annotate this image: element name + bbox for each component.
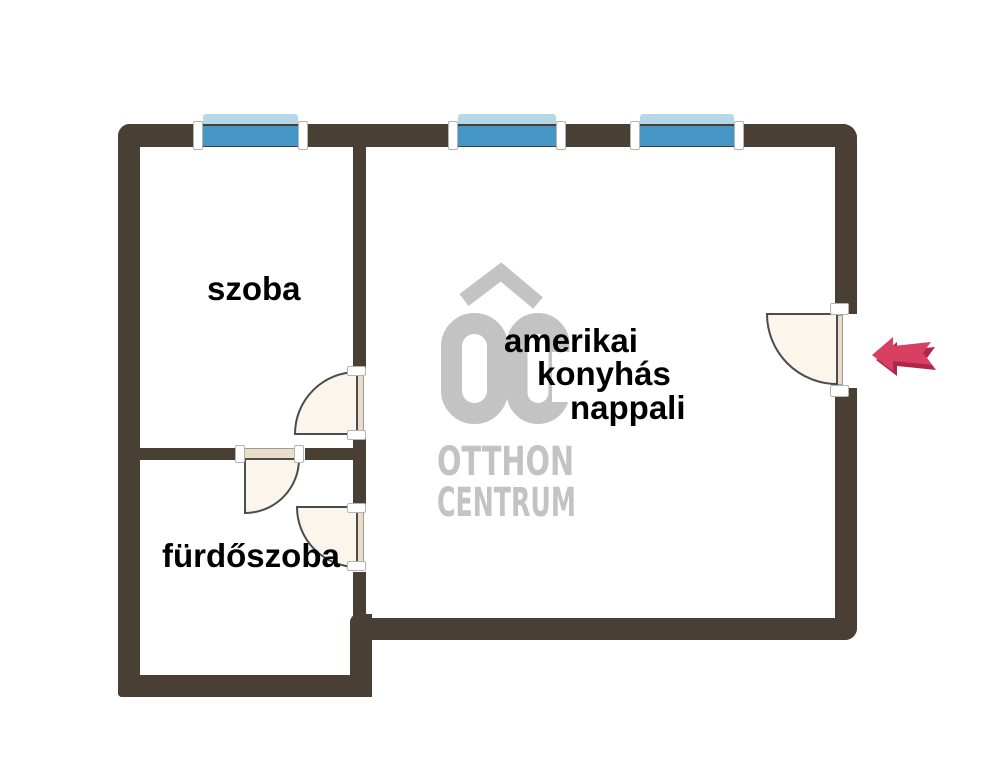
room-label-nappali-line2: konyhás	[537, 357, 671, 390]
door-frame-bracket	[830, 303, 849, 315]
room-label-nappali-line1: amerikai	[504, 324, 638, 357]
roof-chevron-icon	[464, 272, 538, 303]
window-frame-bracket	[298, 121, 308, 150]
window-frame-bracket	[448, 121, 458, 150]
door-frame-bracket	[347, 366, 366, 376]
door-frame-bracket	[347, 503, 366, 513]
door-frame-bracket	[830, 385, 849, 397]
floorplan-vector-layer	[0, 0, 1000, 780]
entrance-arrow-icon	[872, 337, 936, 376]
window-frame-bracket	[193, 121, 203, 150]
door-swing-bathroom-inner	[245, 459, 299, 513]
door-frame-bracket	[347, 430, 366, 440]
door-frame-bracket	[347, 561, 366, 571]
logo-letter-o	[452, 324, 498, 414]
door-swing-szoba	[295, 372, 357, 434]
door-swing-entrance	[767, 314, 837, 384]
room-label-szoba: szoba	[207, 272, 301, 305]
window-frame-bracket	[734, 121, 744, 150]
room-label-furdoszoba: fürdőszoba	[162, 539, 340, 572]
room-label-nappali-line3: nappali	[570, 391, 686, 424]
door-frame-bracket	[235, 445, 245, 463]
window-frame-bracket	[556, 121, 566, 150]
door-frame-bracket	[294, 445, 304, 463]
window-frame-bracket	[630, 121, 640, 150]
